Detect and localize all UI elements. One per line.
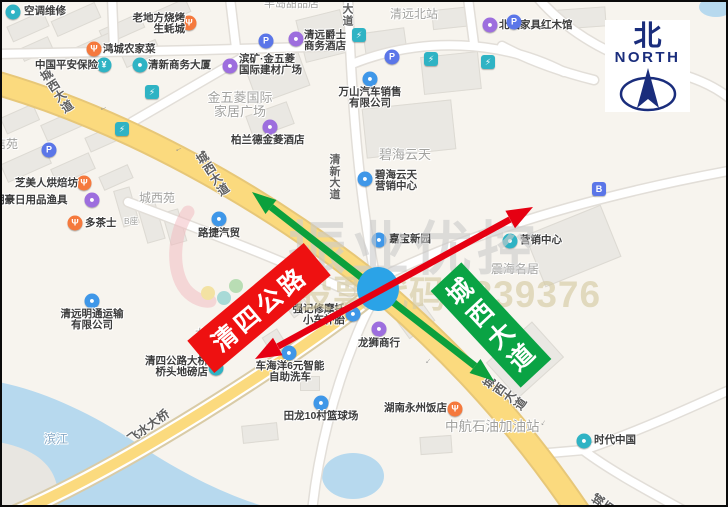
compass-north-zh: 北 [605, 21, 690, 50]
map-canvas[interactable]: 城西大道城西大道城西大道城西清新大道大道飞水大桥←←←← ●空调维修Ψ老地方烧烤… [0, 0, 728, 507]
marketing-center-label: 营销中心 [520, 235, 562, 246]
bolande-jinling-hotel-icon[interactable]: ● [263, 120, 278, 135]
qingxin-business-tower-icon[interactable]: ● [133, 58, 148, 73]
ac-repair-label: 空调维修 [24, 6, 66, 17]
hongcheng-farm-restaurant-icon[interactable]: Ψ [87, 42, 102, 57]
qingyuan-north-station-label: 清远北站 [390, 8, 438, 21]
parking-icon[interactable]: P [507, 15, 522, 30]
ac-repair-icon[interactable]: ● [6, 5, 21, 20]
jiabao-xinyuan-label: 嘉宝新园 [389, 234, 431, 245]
jueshi-business-hotel-icon[interactable]: ● [289, 32, 304, 47]
duochashi-icon[interactable]: Ψ [68, 216, 83, 231]
longshi-shop-icon[interactable]: ● [372, 322, 387, 337]
zhonghang-gas-station-label: 中航石油加油站 [445, 420, 540, 435]
binjiang-river-label: 滨江 [44, 433, 68, 446]
north-compass: 北 NORTH [605, 20, 690, 112]
zhimeiren-bakery-label: 芝美人烘焙坊 [15, 178, 78, 189]
pingan-insurance-label: 中国平安保险 [35, 60, 98, 71]
hongcheng-farm-restaurant-label: 鸿城农家菜 [103, 44, 156, 55]
bus-stop-icon[interactable]: B [592, 182, 606, 196]
shidai-china-label: 时代中国 [594, 435, 636, 446]
xinyuan-area-label: 信苑 [0, 138, 18, 151]
jueshi-business-hotel-label: 清远爵士商务酒店 [304, 30, 346, 53]
zhenhai-mingju-area-label: 震海名居 [491, 263, 539, 276]
binkuang-jinwuling-building-market-icon[interactable]: ● [223, 59, 238, 74]
compass-north-en: NORTH [605, 50, 690, 65]
parking-icon[interactable]: P [42, 143, 57, 158]
tianlong-basketball-court-label: 田龙10村篮球场 [284, 411, 359, 422]
binkuang-jinwuling-building-market-label: 滨矿·金五菱国际建材广场 [239, 54, 302, 77]
jinwuling-home-plaza-label: 金五菱国际家居广场 [207, 91, 272, 119]
qiangji-moto-repair-label: 强记修摩托小车补胎 [293, 304, 346, 327]
wanshan-auto-sales-label: 万山汽车销售有限公司 [339, 87, 402, 110]
parking-icon[interactable]: P [385, 50, 400, 65]
qingsi-bridge-weigh-shop-label: 清四公路大桥桥头地磅店 [145, 356, 208, 379]
bolande-jinling-hotel-label: 柏兰德金菱酒店 [231, 135, 305, 146]
lujie-auto-trade-label: 路捷汽贸 [198, 228, 240, 239]
longshi-shop-label: 龙狮商行 [358, 338, 400, 349]
jiabao-xinyuan-icon[interactable]: ● [372, 233, 387, 248]
bihai-yuntian-sales-center-icon[interactable]: ● [358, 172, 373, 187]
charging-station-icon[interactable]: ⚡ [481, 55, 495, 69]
beizhan-furniture-hall-icon[interactable]: ● [483, 18, 498, 33]
bihai-yuntian-sales-center-label: 碧海云天营销中心 [375, 170, 417, 193]
pingan-insurance-icon[interactable]: ¥ [97, 58, 112, 73]
bandao-dessert-shop-label: 半岛甜品店 [264, 0, 319, 11]
chehaiyang-carwash-icon[interactable]: ● [282, 346, 297, 361]
wanshan-auto-sales-icon[interactable]: ● [363, 72, 378, 87]
duochashi-label: 多茶士 [85, 218, 117, 229]
shidai-china-icon[interactable]: ● [577, 434, 592, 449]
mingtong-transport-icon[interactable]: ● [85, 294, 100, 309]
chehaiyang-carwash-label: 车海洋6元智能自助洗车 [256, 361, 325, 384]
charging-station-icon[interactable]: ⚡ [352, 28, 366, 42]
chengxiyuan-area-label: 城西苑 [139, 192, 175, 205]
marketing-center-icon[interactable]: ● [503, 234, 518, 249]
parking-icon[interactable]: P [259, 34, 274, 49]
minghao-daily-goods-fishing-icon[interactable]: ● [85, 193, 100, 208]
qiangji-moto-repair-icon[interactable]: ● [346, 307, 361, 322]
lujie-auto-trade-icon[interactable]: ● [212, 212, 227, 227]
mingtong-transport-label: 清远明通运输有限公司 [61, 309, 124, 332]
zhimeiren-bakery-icon[interactable]: Ψ [77, 176, 92, 191]
minghao-daily-goods-fishing-label: 明豪日用品渔具 [0, 195, 68, 206]
qingxin-business-tower-label: 清新商务大厦 [148, 60, 211, 71]
charging-station-icon[interactable]: ⚡ [145, 85, 159, 99]
bihai-yuntian-area-label: 碧海云天 [379, 148, 431, 162]
charging-station-icon[interactable]: ⚡ [424, 52, 438, 66]
hunan-yongzhou-restaurant-label: 湖南永州饭店 [384, 403, 447, 414]
charging-station-icon[interactable]: ⚡ [115, 122, 129, 136]
compass-needle-icon [617, 66, 679, 112]
tianlong-basketball-court-icon[interactable]: ● [314, 396, 329, 411]
hunan-yongzhou-restaurant-icon[interactable]: Ψ [448, 402, 463, 417]
b-block-label: B座 [124, 217, 138, 226]
laodifang-bbq-restaurant-label: 老地方烧烤生蚝城 [133, 13, 186, 36]
